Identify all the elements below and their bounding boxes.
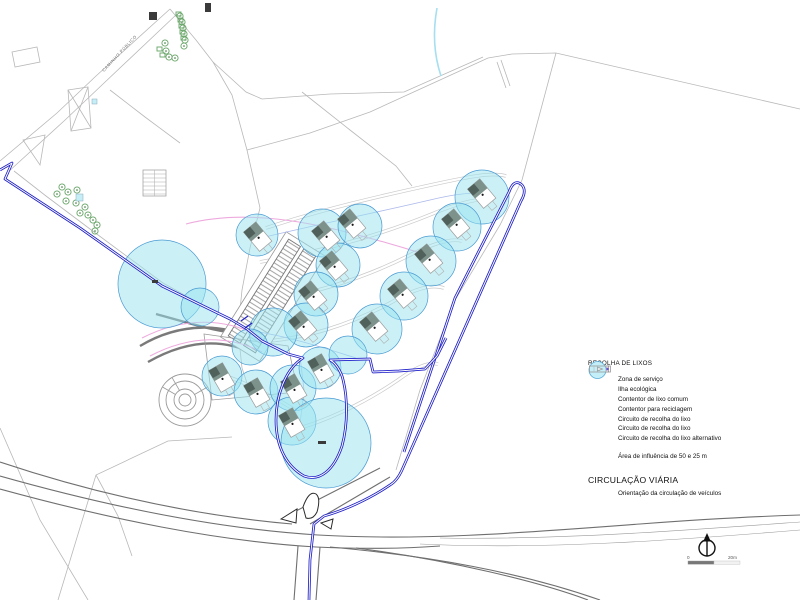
legend-item-label: Circuito de recolha do lixo alternativo [618,435,721,442]
legend-section-title: CIRCULAÇÃO VIÁRIA [588,475,800,485]
structure-mark [205,3,211,12]
legend-item: Circuito de recolha do lixo [588,414,800,424]
legend-item: AZona de serviço [588,375,800,385]
scale-bar-dark-segment [688,561,714,564]
legend-items: AZona de serviçoIlha ecológicaContentor … [588,375,800,468]
legend-item: Circuito de recolha do lixo alternativo [588,434,800,444]
structure-mark [152,280,158,283]
legend-item-label: Circuito de recolha do lixo [618,416,690,423]
scale-bar-light-segment [714,561,740,564]
legend-item: Contentor de lixo comum [588,395,800,405]
legend-item-label: Ilha ecológica [618,386,657,393]
legend-item-label: Contentor de lixo comum [618,396,688,403]
structure-mark [318,441,326,444]
influence-circle [329,336,367,374]
stream-layer [434,8,441,76]
arrow-box-icon [588,360,613,378]
legend-item-label: Zona de serviço [618,376,663,383]
legend-item-label: Circuito de recolha do lixo [618,425,690,432]
influence-circle [181,288,219,326]
legend-item: Área de influência de 50 e 25 m [588,446,800,468]
legend-panel: RECOLHA DE LIXOS AZona de serviçoIlha ec… [588,360,800,498]
water-feature [76,194,83,201]
scale-bar: 0 20m [687,555,740,564]
legend-item: Orientação da circulação de veículos [588,489,800,499]
influence-circle [232,329,268,365]
legend-title: RECOLHA DE LIXOS [588,360,800,367]
north-arrow [699,533,715,556]
legend-item-label: Área de influência de 50 e 25 m [618,453,707,460]
road-name-label: CAMINHO PÚBLICO [101,34,138,73]
legend-item-label: Orientação da circulação de veículos [618,490,721,497]
scale-max-label: 20m [728,555,737,560]
grid-building [143,170,166,196]
water-feature [92,99,97,104]
scale-zero-label: 0 [687,555,690,560]
legend-item: Circuito de recolha do lixo [588,424,800,434]
legend-item-label: Contentor para reciclagem [618,406,692,413]
legend-circulation-items: Orientação da circulação de veículos [588,489,800,499]
site-plan-map: CAMINHO PÚBLICO 0 20m [0,0,800,600]
site-plan-canvas: CAMINHO PÚBLICO 0 20m RECOLHA DE LIXOS A… [0,0,800,600]
stream-line [434,8,441,76]
legend-item: Ilha ecológica [588,385,800,395]
structure-mark [149,12,157,20]
hedge [157,47,162,51]
legend-item: Contentor para reciclagem [588,404,800,414]
